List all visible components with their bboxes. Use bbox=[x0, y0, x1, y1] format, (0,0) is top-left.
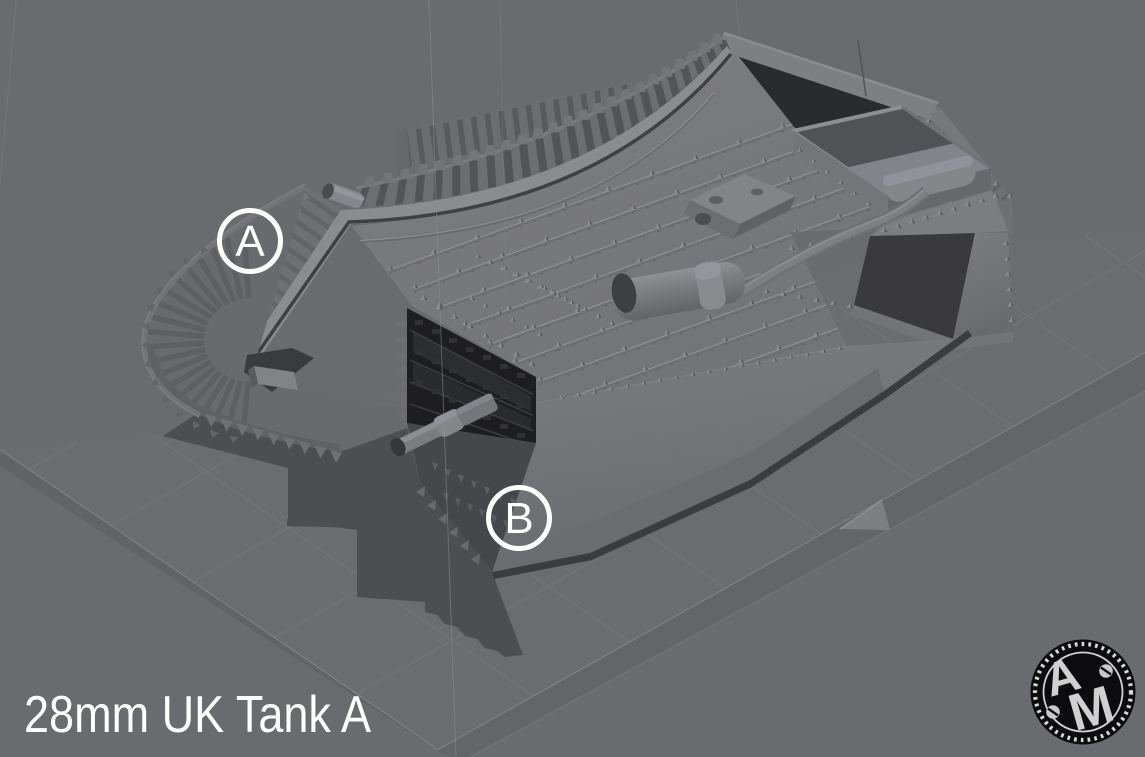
svg-text:A: A bbox=[235, 217, 265, 266]
svg-text:B: B bbox=[504, 494, 533, 543]
svg-text:28mm UK Tank A: 28mm UK Tank A bbox=[24, 686, 371, 744]
